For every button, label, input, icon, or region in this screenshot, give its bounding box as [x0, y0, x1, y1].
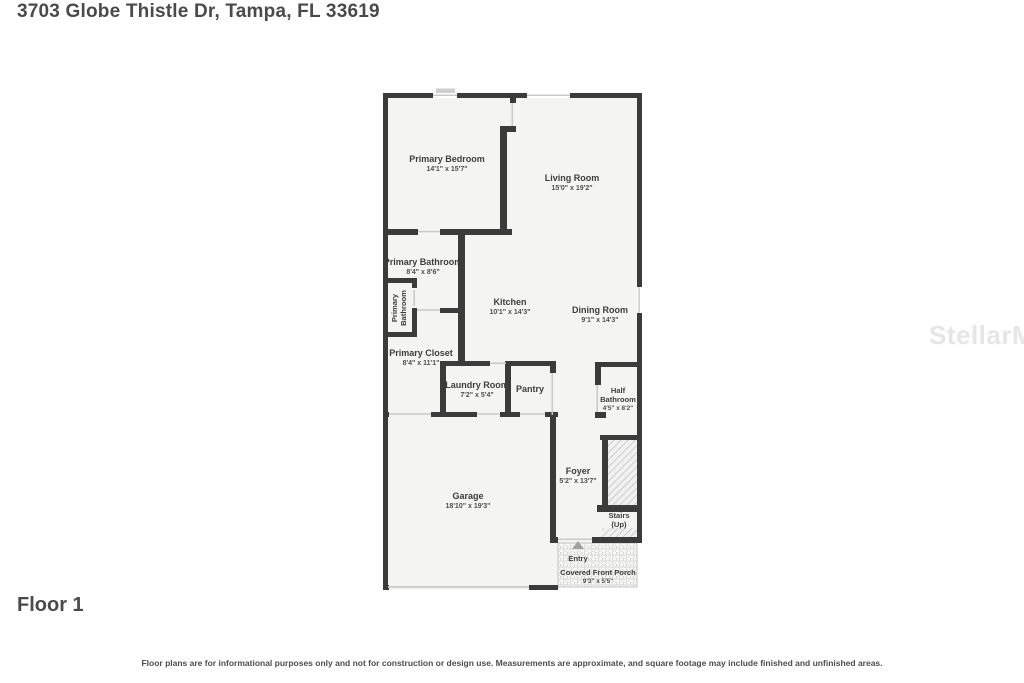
room-label-stairs: Stairs (Up) — [608, 511, 629, 529]
room-label-living-room: Living Room 15'0" x 19'2" — [545, 173, 600, 192]
svg-text:Stairs: Stairs — [608, 511, 629, 520]
svg-text:Foyer: Foyer — [566, 466, 591, 476]
svg-text:8'4" x 11'1": 8'4" x 11'1" — [403, 360, 440, 367]
floor-plan: Primary Bedroom 14'1" x 15'7" Living Roo… — [0, 0, 1024, 683]
svg-text:Entry: Entry — [568, 554, 588, 563]
svg-text:Bathroom: Bathroom — [399, 290, 408, 326]
svg-text:4'5" x 8'2": 4'5" x 8'2" — [603, 405, 633, 412]
svg-text:5'2" x 13'7": 5'2" x 13'7" — [559, 478, 596, 485]
svg-text:Pantry: Pantry — [516, 384, 544, 394]
disclaimer-text: Floor plans are for informational purpos… — [0, 658, 1024, 668]
svg-text:8'4" x 8'6": 8'4" x 8'6" — [406, 269, 439, 276]
svg-text:Dining Room: Dining Room — [572, 305, 628, 315]
stellar-mls-watermark: StellarMLS — [929, 320, 1024, 351]
svg-text:18'10" x 19'3": 18'10" x 19'3" — [445, 503, 490, 510]
svg-text:(Up): (Up) — [611, 520, 627, 529]
svg-text:Primary Bathroom: Primary Bathroom — [384, 257, 463, 267]
svg-text:14'1" x 15'7": 14'1" x 15'7" — [426, 166, 467, 173]
room-label-primary-bathroom-wc: Primary Bathroom — [390, 290, 408, 326]
svg-text:9'3" x 5'5": 9'3" x 5'5" — [583, 578, 613, 585]
svg-text:Laundry Room: Laundry Room — [445, 380, 509, 390]
svg-text:Bathroom: Bathroom — [600, 395, 636, 404]
floor-label: Floor 1 — [17, 594, 84, 617]
svg-text:10'1" x 14'3": 10'1" x 14'3" — [489, 309, 530, 316]
room-label-entry: Entry — [568, 554, 588, 563]
window-sill — [436, 89, 455, 94]
svg-text:Primary Bedroom: Primary Bedroom — [409, 154, 485, 164]
svg-text:Primary Closet: Primary Closet — [389, 348, 453, 358]
room-label-kitchen: Kitchen 10'1" x 14'3" — [489, 297, 530, 316]
svg-text:Half: Half — [611, 386, 626, 395]
svg-text:Living Room: Living Room — [545, 173, 600, 183]
svg-text:9'1" x 14'3": 9'1" x 14'3" — [581, 317, 618, 324]
svg-text:Kitchen: Kitchen — [493, 297, 526, 307]
svg-text:7'2" x 5'4": 7'2" x 5'4" — [460, 392, 493, 399]
svg-text:Covered Front Porch: Covered Front Porch — [560, 568, 636, 577]
room-label-pantry: Pantry — [516, 384, 544, 394]
svg-text:Primary: Primary — [390, 293, 399, 322]
svg-text:15'0" x 19'2": 15'0" x 19'2" — [551, 185, 592, 192]
svg-text:Garage: Garage — [452, 491, 483, 501]
